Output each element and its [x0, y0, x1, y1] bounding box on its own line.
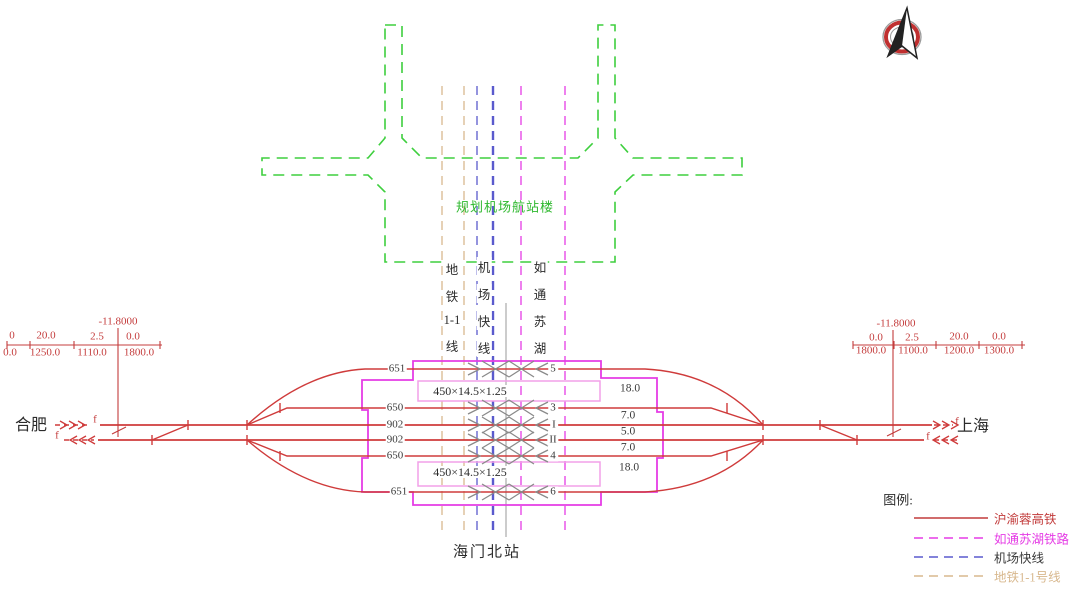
track-number-5: 5: [548, 364, 558, 375]
left-length-1: 0.0: [3, 348, 17, 359]
track-number-6: 6: [548, 487, 558, 498]
station-name: 海门北站: [453, 546, 521, 561]
direction-hefei: 合肥: [15, 418, 47, 434]
terminal-building-outline: [262, 25, 742, 262]
legend-label-metro: 地铁1-1号线: [994, 567, 1061, 586]
track-length-3: 650: [386, 403, 405, 414]
right-grade-3: 20.0: [949, 332, 968, 343]
f-marker-left-top: f: [93, 415, 97, 426]
platform-top-dimension: 450×14.5×1.25: [431, 385, 509, 397]
left-length-4: 1800.0: [124, 348, 154, 359]
right-grade-4: 0.0: [992, 332, 1006, 343]
left-grade-2: 20.0: [36, 331, 55, 342]
legend-label-rutongsuhu: 如通苏湖铁路: [994, 529, 1069, 548]
left-length-2: 1250.0: [30, 348, 60, 359]
terminal-building-label: 规划机场航站楼: [456, 201, 554, 214]
right-grade-2: 2.5: [905, 333, 919, 344]
legend-title: 图例:: [883, 494, 913, 507]
right-elevation: -11.8000: [876, 319, 915, 330]
crossover-right: [820, 425, 857, 440]
station-boundary: [362, 361, 663, 505]
track-number-4: 4: [548, 451, 558, 462]
track-length-I: 902: [386, 420, 405, 431]
north-arrow-icon: [883, 8, 921, 58]
platform-bottom-dimension: 450×14.5×1.25: [431, 466, 509, 478]
left-length-3: 1110.0: [77, 348, 106, 359]
f-marker-left-bottom: f: [55, 431, 59, 442]
right-length-2: 1100.0: [898, 346, 928, 357]
legend-lines: [914, 518, 988, 576]
track-number-3: 3: [548, 403, 558, 414]
track-layout-drawing: 规划机场航站楼 地 铁 1-1 线 机 场 快 线 如 通 苏 湖 651 65…: [0, 0, 1080, 597]
turnout-ticks: [152, 403, 857, 461]
track-length-II: 902: [386, 435, 405, 446]
left-grade-4: 0.0: [126, 332, 140, 343]
track-length-6: 651: [390, 487, 409, 498]
legend-label-airport-express: 机场快线: [994, 548, 1044, 567]
center-crossing-marks: [468, 361, 548, 500]
spacing-II-4: 7.0: [621, 442, 635, 454]
direction-shanghai: 上海: [957, 419, 989, 435]
f-marker-right-bottom: f: [926, 432, 930, 443]
left-grade-1: 0: [9, 331, 15, 342]
right-grade-1: 0.0: [869, 333, 883, 344]
right-length-3: 1200.0: [944, 346, 974, 357]
track-length-4: 650: [386, 451, 405, 462]
left-elevation: -11.8000: [98, 317, 137, 328]
track-4: [247, 440, 763, 456]
track-number-I: I: [550, 420, 558, 431]
right-length-4: 1300.0: [984, 346, 1014, 357]
track-3: [247, 408, 763, 425]
metro-corridor-label: 地 铁 1-1 线: [443, 259, 462, 355]
spacing-4-6: 18.0: [619, 462, 639, 474]
airport-express-corridor-label: 机 场 快 线: [477, 257, 492, 357]
crossover-left: [152, 425, 188, 440]
track-number-II: II: [547, 435, 558, 446]
spacing-I-II: 5.0: [621, 426, 635, 438]
f-marker-right-top: f: [955, 417, 959, 428]
spacing-3-I: 7.0: [621, 410, 635, 422]
right-length-1: 1800.0: [856, 346, 886, 357]
spacing-5-3: 18.0: [620, 383, 640, 395]
track-length-5: 651: [388, 364, 407, 375]
legend-label-huyurong: 沪渝蓉高铁: [994, 509, 1057, 528]
left-grade-3: 2.5: [90, 332, 104, 343]
rutong-suhu-corridor-label: 如 通 苏 湖: [533, 257, 548, 357]
